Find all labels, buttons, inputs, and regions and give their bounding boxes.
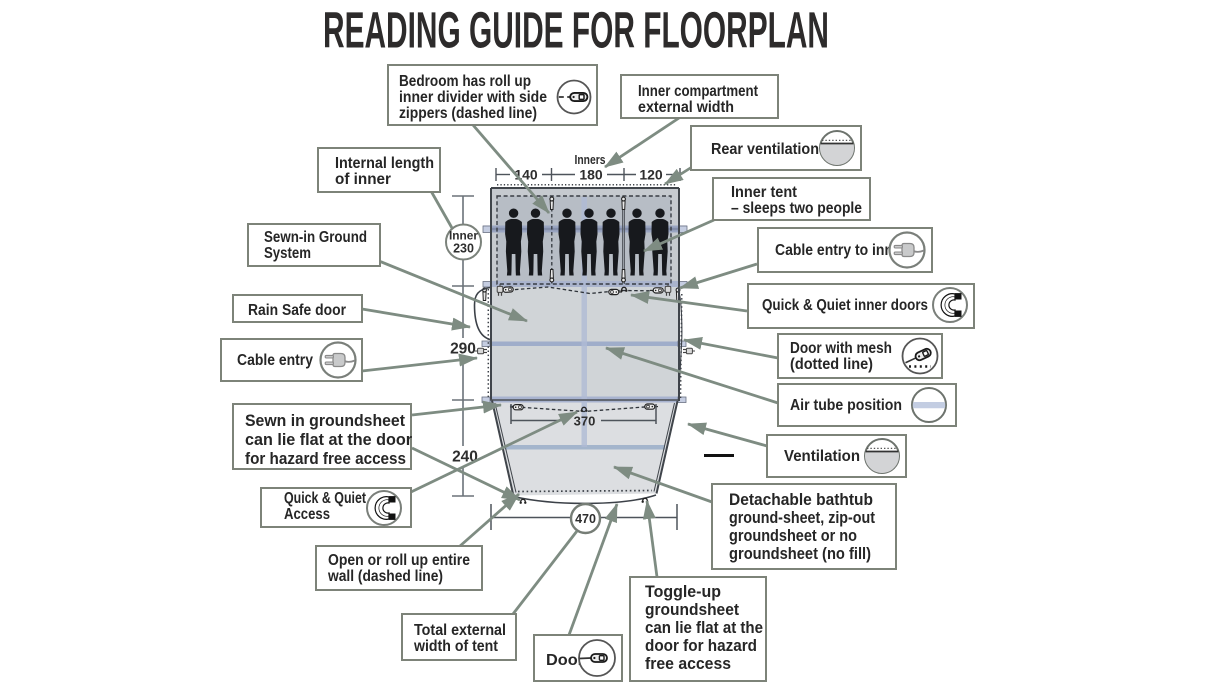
svg-text:inner divider with side: inner divider with side: [399, 89, 547, 106]
svg-text:of inner: of inner: [335, 171, 391, 188]
svg-text:140: 140: [514, 167, 538, 183]
svg-text:READING GUIDE FOR FLOORPLAN: READING GUIDE FOR FLOORPLAN: [323, 2, 829, 59]
svg-text:– sleeps two people: – sleeps two people: [731, 200, 862, 217]
svg-text:Internal length: Internal length: [335, 155, 434, 172]
svg-text:Bedroom has roll up: Bedroom has roll up: [399, 73, 531, 90]
svg-text:Sewn in groundsheet: Sewn in groundsheet: [245, 412, 405, 430]
svg-text:ground-sheet, zip-out: ground-sheet, zip-out: [729, 509, 875, 527]
svg-text:180: 180: [579, 167, 603, 183]
svg-text:120: 120: [639, 167, 663, 183]
svg-text:Inner tent: Inner tent: [731, 184, 797, 201]
svg-text:Door with mesh: Door with mesh: [790, 340, 892, 357]
svg-text:370: 370: [574, 414, 596, 429]
svg-text:Rear ventilation: Rear ventilation: [711, 141, 819, 158]
svg-text:Sewn-in Ground: Sewn-in Ground: [264, 229, 367, 246]
svg-text:can lie flat at the door: can lie flat at the door: [245, 431, 413, 449]
svg-text:Toggle-up: Toggle-up: [645, 583, 721, 601]
svg-text:groundsheet: groundsheet: [645, 601, 739, 619]
svg-text:width of tent: width of tent: [413, 638, 498, 655]
svg-text:free access: free access: [645, 655, 731, 673]
svg-text:290: 290: [450, 341, 476, 358]
svg-text:Cable entry: Cable entry: [237, 352, 313, 369]
svg-text:groundsheet or no: groundsheet or no: [729, 527, 857, 545]
svg-text:zippers (dashed line): zippers (dashed line): [399, 105, 537, 122]
svg-text:for hazard free access: for hazard free access: [245, 450, 406, 468]
svg-text:(dotted line): (dotted line): [790, 356, 873, 373]
svg-text:Quick & Quiet: Quick & Quiet: [284, 490, 366, 507]
svg-text:Quick & Quiet inner doors: Quick & Quiet inner doors: [762, 297, 928, 314]
svg-text:groundsheet (no fill): groundsheet (no fill): [729, 545, 871, 563]
svg-text:can lie flat at the: can lie flat at the: [645, 619, 763, 637]
svg-text:external width: external width: [638, 99, 734, 116]
svg-text:Rain Safe door: Rain Safe door: [248, 302, 346, 319]
svg-text:Detachable bathtub: Detachable bathtub: [729, 491, 873, 509]
svg-text:Inners: Inners: [575, 153, 606, 167]
svg-text:Inner compartment: Inner compartment: [638, 83, 758, 100]
svg-text:Air tube position: Air tube position: [790, 397, 902, 414]
svg-text:Ventilation: Ventilation: [784, 448, 860, 465]
svg-text:Access: Access: [284, 506, 330, 523]
svg-text:230: 230: [453, 242, 474, 256]
svg-text:door for hazard: door for hazard: [645, 637, 757, 655]
svg-text:470: 470: [575, 512, 596, 526]
svg-text:wall (dashed line): wall (dashed line): [327, 568, 443, 585]
svg-text:Cable entry to inn: Cable entry to inn: [775, 242, 893, 259]
svg-text:Inner: Inner: [449, 229, 478, 243]
svg-text:Total external: Total external: [414, 622, 506, 639]
svg-text:Open or roll up entire: Open or roll up entire: [328, 552, 470, 569]
svg-text:System: System: [264, 245, 311, 262]
